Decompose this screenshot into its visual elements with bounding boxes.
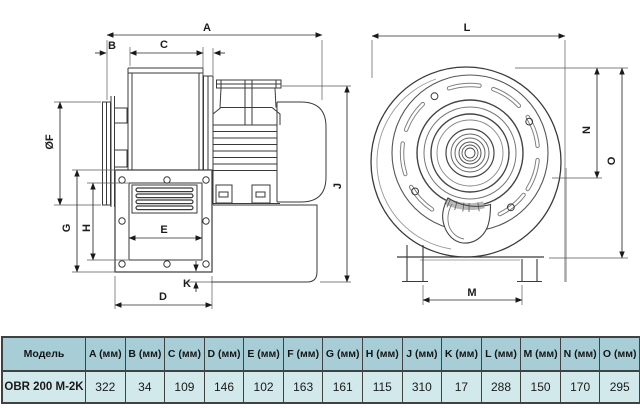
cell-l: 288 bbox=[482, 372, 521, 402]
cell-d: 146 bbox=[205, 372, 244, 402]
col-header-k: K (мм) bbox=[442, 338, 481, 371]
dim-label-k: K bbox=[183, 278, 191, 290]
dim-label-b: B bbox=[108, 40, 116, 52]
dim-label-o: O bbox=[606, 156, 618, 165]
dim-label-d: D bbox=[159, 291, 167, 303]
col-header-e: E (мм) bbox=[244, 338, 283, 371]
col-header-model: Модель bbox=[3, 338, 85, 371]
col-header-o: O (мм) bbox=[600, 338, 639, 371]
dim-label-c: C bbox=[160, 39, 168, 51]
col-header-j: J (мм) bbox=[403, 338, 442, 371]
side-view bbox=[103, 68, 327, 282]
technical-drawing: A B C ØF G H E K D J L N O M bbox=[0, 0, 640, 336]
col-header-m: M (мм) bbox=[521, 338, 560, 371]
col-header-f: F (мм) bbox=[284, 338, 323, 371]
cell-n: 170 bbox=[561, 372, 600, 402]
cell-a: 322 bbox=[86, 372, 125, 402]
cell-m: 150 bbox=[521, 372, 560, 402]
col-header-n: N (мм) bbox=[561, 338, 600, 371]
dim-label-n: N bbox=[581, 126, 593, 134]
col-header-a: A (мм) bbox=[86, 338, 125, 371]
cell-h: 115 bbox=[363, 372, 402, 402]
cell-o: 295 bbox=[600, 372, 639, 402]
dim-label-j: J bbox=[332, 183, 344, 189]
col-header-l: L (мм) bbox=[482, 338, 521, 371]
col-header-d: D (мм) bbox=[205, 338, 244, 371]
cell-f: 163 bbox=[284, 372, 323, 402]
cell-g: 161 bbox=[323, 372, 362, 402]
dim-label-m: M bbox=[467, 287, 476, 299]
cell-e: 102 bbox=[244, 372, 283, 402]
rotation-clamp-tag bbox=[443, 198, 491, 243]
cell-c: 109 bbox=[165, 372, 204, 402]
vent-slots bbox=[402, 85, 538, 214]
col-header-b: B (мм) bbox=[126, 338, 165, 371]
dim-label-f: ØF bbox=[44, 134, 56, 150]
cell-j: 310 bbox=[403, 372, 442, 402]
screenshot-root: A B C ØF G H E K D J L N O M Модель A (м… bbox=[0, 0, 640, 408]
mounting-feet bbox=[402, 245, 542, 282]
dim-label-l: L bbox=[464, 22, 471, 34]
col-header-c: C (мм) bbox=[165, 338, 204, 371]
cell-k: 17 bbox=[442, 372, 481, 402]
cell-b: 34 bbox=[126, 372, 165, 402]
dim-label-h: H bbox=[81, 224, 93, 232]
front-view bbox=[371, 67, 566, 282]
col-header-g: G (мм) bbox=[323, 338, 362, 371]
dim-label-e: E bbox=[160, 224, 167, 236]
cell-model: OBR 200 M-2K bbox=[3, 372, 85, 402]
dim-label-a: A bbox=[203, 22, 211, 34]
col-header-h: H (мм) bbox=[363, 338, 402, 371]
dim-label-g: G bbox=[61, 224, 73, 233]
dimensions-table: Модель A (мм) B (мм) C (мм) D (мм) E (мм… bbox=[1, 336, 640, 404]
